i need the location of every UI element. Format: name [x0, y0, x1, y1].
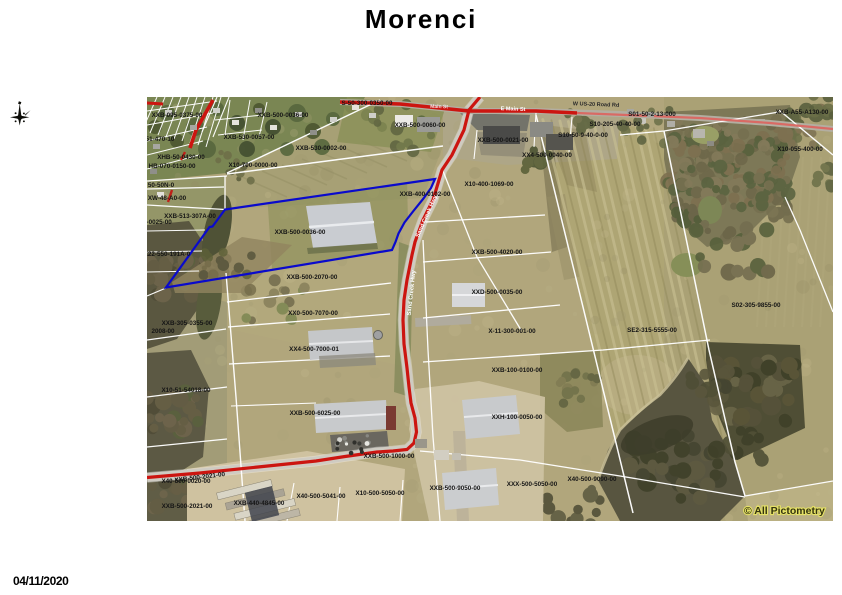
svg-text:2008-00: 2008-00	[151, 328, 175, 335]
svg-text:XXB-500-0021-00: XXB-500-0021-00	[478, 137, 529, 144]
svg-text:XXB-500-0036-00: XXB-500-0036-00	[258, 112, 309, 119]
svg-text:XX4-500-0040-00: XX4-500-0040-00	[522, 152, 572, 159]
svg-text:XXB-500-1000-00: XXB-500-1000-00	[364, 453, 415, 460]
svg-text:X10-400-1069-00: X10-400-1069-00	[464, 181, 514, 188]
svg-text:XXB-530-0057-00: XXB-530-0057-00	[224, 134, 275, 141]
svg-text:XXB-305-0355-00: XXB-305-0355-00	[162, 320, 213, 327]
svg-text:XXB-440-4845-00: XXB-440-4845-00	[234, 500, 285, 507]
svg-text:XXB-095-0375-00: XXB-095-0375-00	[152, 112, 203, 119]
svg-text:51-470-10: 51-470-10	[147, 136, 175, 143]
svg-text:SE2-315-5555-00: SE2-315-5555-00	[627, 327, 677, 334]
svg-text:50-50N-0: 50-50N-0	[148, 182, 175, 189]
svg-text:XXB-500-0060-00: XXB-500-0060-00	[395, 122, 446, 129]
svg-text:XXB-513-307A-00: XXB-513-307A-00	[164, 213, 216, 220]
svg-text:XXB-500-2070-00: XXB-500-2070-00	[287, 274, 338, 281]
svg-text:X22-550-191A-0: X22-550-191A-0	[147, 251, 191, 258]
svg-text:XXB-500-0036-00: XXB-500-0036-00	[275, 229, 326, 236]
svg-text:S01-50-2-13-000: S01-50-2-13-000	[628, 111, 676, 118]
svg-text:HB-070-0150-00: HB-070-0150-00	[149, 163, 196, 170]
svg-text:XXB-100-0100-00: XXB-100-0100-00	[492, 367, 543, 374]
svg-text:XW-48-A0-00: XW-48-A0-00	[148, 195, 187, 202]
svg-text:XXB-A55-A130-00: XXB-A55-A130-00	[776, 109, 829, 116]
svg-text:XXD-500-0035-00: XXD-500-0035-00	[472, 289, 523, 296]
svg-text:X10-51-54018-00: X10-51-54018-00	[161, 387, 211, 394]
svg-text:XXB-500-2021-00: XXB-500-2021-00	[162, 503, 213, 510]
svg-text:XXB-400-0102-00: XXB-400-0102-00	[400, 191, 451, 198]
svg-text:XX4-500-7000-01: XX4-500-7000-01	[289, 346, 339, 353]
svg-text:Main St: Main St	[430, 104, 448, 111]
svg-text:XXB-500-9050-00: XXB-500-9050-00	[430, 485, 481, 492]
svg-text:XXB-530-0002-00: XXB-530-0002-00	[296, 145, 347, 152]
svg-text:XHB-50-0430-00: XHB-50-0430-00	[157, 154, 205, 161]
svg-text:XXH-100-0050-00: XXH-100-0050-00	[492, 414, 543, 421]
svg-text:XXB-500-4020-00: XXB-500-4020-00	[472, 249, 523, 256]
svg-text:S10-50-9-40-0-00: S10-50-9-40-0-00	[558, 132, 608, 139]
svg-text:XX0-500-7070-00: XX0-500-7070-00	[288, 310, 338, 317]
svg-text:E Main St: E Main St	[501, 106, 526, 113]
svg-text:X10-700-0000-00: X10-700-0000-00	[228, 162, 278, 169]
svg-text:X-11-300-001-00: X-11-300-001-00	[488, 328, 536, 335]
svg-text:X-0025-00: X-0025-00	[147, 219, 172, 226]
svg-text:S-50-300-0350-00: S-50-300-0350-00	[341, 100, 393, 107]
svg-text:S02-305-9855-00: S02-305-9855-00	[731, 302, 781, 309]
svg-text:S10-205-40-40-00: S10-205-40-40-00	[589, 121, 641, 128]
svg-text:XXB-500-6025-00: XXB-500-6025-00	[290, 410, 341, 417]
svg-text:X40-500-9090-00: X40-500-9090-00	[567, 476, 617, 483]
svg-text:X40-500-5041-00: X40-500-5041-00	[296, 493, 346, 500]
svg-text:X10-500-5050-00: X10-500-5050-00	[355, 490, 405, 497]
svg-text:© All Pictometry: © All Pictometry	[744, 505, 825, 517]
svg-text:X10-055-400-00: X10-055-400-00	[777, 146, 823, 153]
svg-text:XXX-500-5050-00: XXX-500-5050-00	[507, 481, 558, 488]
